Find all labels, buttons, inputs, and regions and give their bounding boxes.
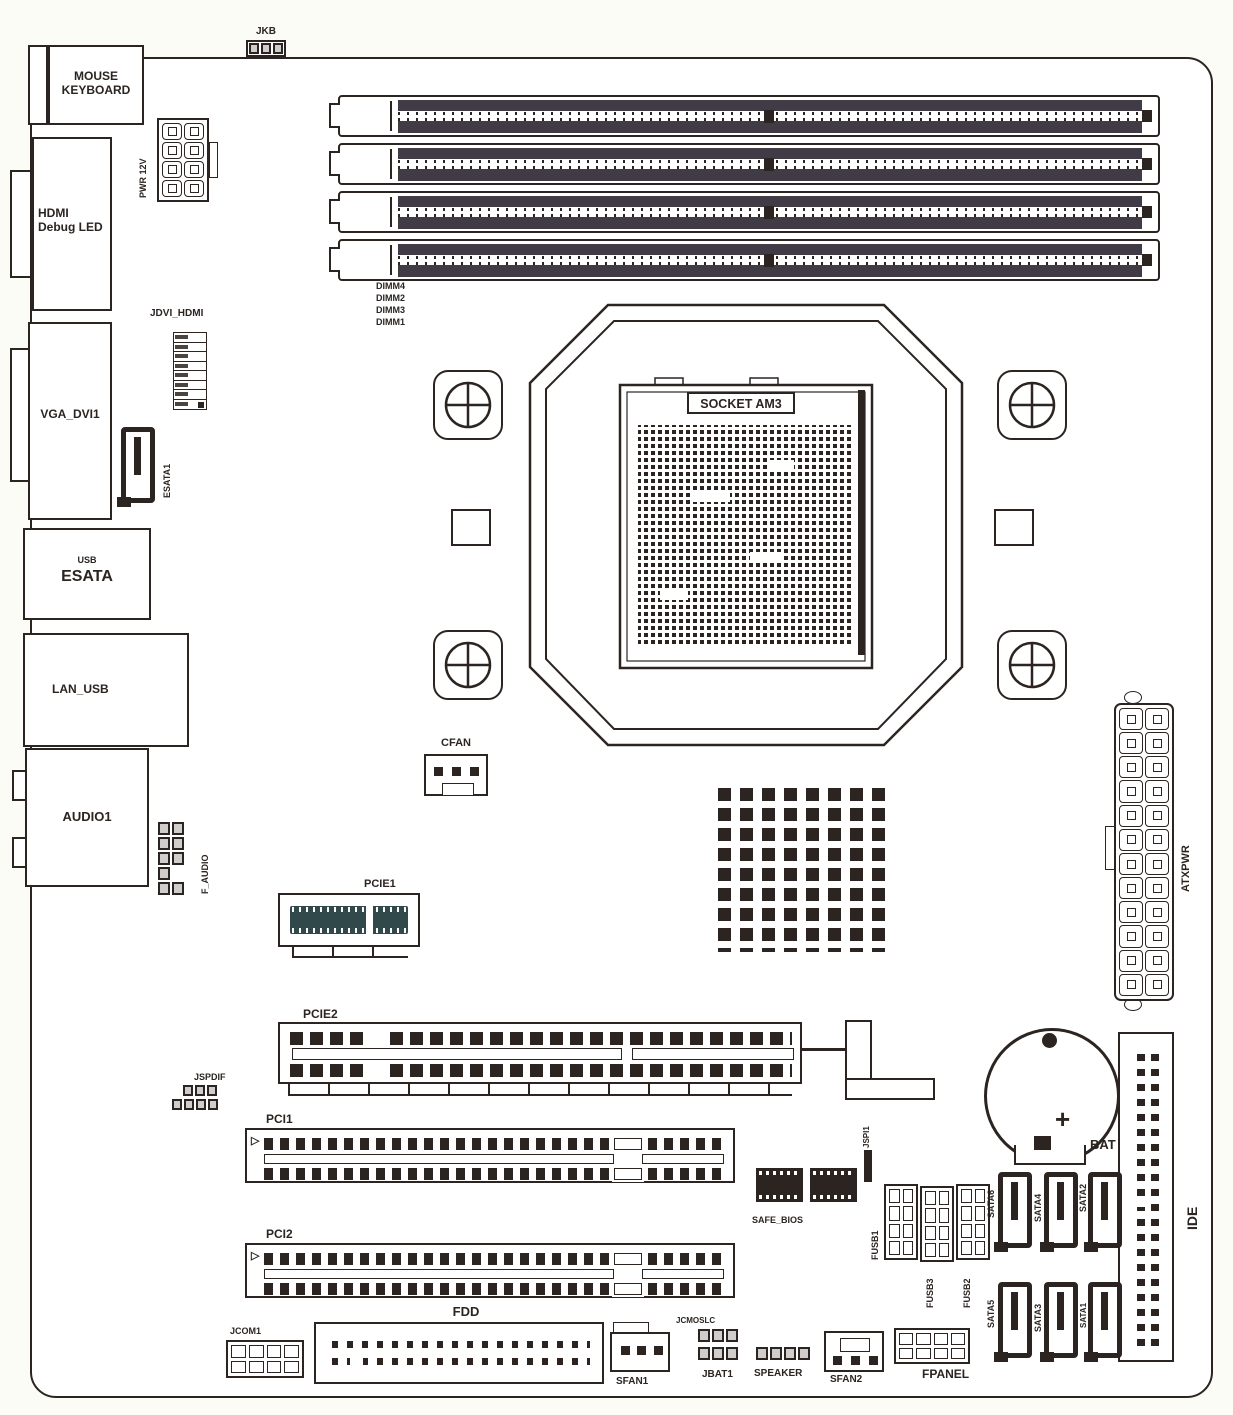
fpanel-label: FPANEL bbox=[922, 1368, 969, 1382]
pcie1-solder-teeth bbox=[292, 947, 408, 958]
sata2-connector bbox=[1088, 1172, 1122, 1248]
hdmi-port-bracket bbox=[10, 170, 32, 278]
atxpwr-connector bbox=[1114, 703, 1174, 1001]
jdvi-hdmi-label: JDVI_HDMI bbox=[150, 308, 203, 320]
pci1-label: PCI1 bbox=[266, 1113, 293, 1127]
pcie2-solder-teeth bbox=[288, 1084, 792, 1096]
sata1-label: SATA1 bbox=[1079, 1288, 1088, 1328]
sata6-connector bbox=[998, 1172, 1032, 1248]
dimm-label-4: DIMM1 bbox=[376, 317, 405, 327]
fusb1-header bbox=[884, 1184, 918, 1260]
fdd-connector bbox=[314, 1322, 604, 1384]
ide-connector bbox=[1118, 1032, 1174, 1362]
hdmi-debugled-label: HDMIDebug LED bbox=[38, 207, 103, 235]
cfan-label: CFAN bbox=[430, 737, 482, 750]
sata3-connector bbox=[1044, 1282, 1078, 1358]
pcie2-label: PCIE2 bbox=[303, 1008, 338, 1022]
esata1-label: ESATA1 bbox=[162, 442, 172, 498]
esata-label: ESATA bbox=[25, 568, 149, 586]
atxpwr-label: ATXPWR bbox=[1180, 824, 1193, 892]
jspdif-label: JSPDIF bbox=[194, 1072, 226, 1082]
jbat1-label: JBAT1 bbox=[702, 1369, 733, 1381]
motherboard-diagram: MOUSEKEYBOARD HDMIDebug LED VGA_DVI1 USB… bbox=[0, 0, 1233, 1415]
audio-label: AUDIO1 bbox=[27, 810, 147, 825]
dimm-label-3: DIMM3 bbox=[376, 305, 405, 315]
pci1-slot: ▷ bbox=[245, 1128, 735, 1183]
bios-chip-2 bbox=[810, 1168, 857, 1202]
f-audio-header bbox=[158, 822, 184, 895]
fusb3-header bbox=[920, 1186, 954, 1262]
esata1-connector bbox=[121, 427, 155, 503]
dimm-label-2: DIMM2 bbox=[376, 293, 405, 303]
sata3-label: SATA3 bbox=[1033, 1290, 1043, 1332]
sfan2-label: SFAN2 bbox=[830, 1374, 862, 1386]
jcmos-jumper bbox=[698, 1329, 738, 1342]
pcie1-label: PCIE1 bbox=[364, 878, 396, 891]
jspdif-header-row1 bbox=[183, 1085, 217, 1096]
sfan1-connector bbox=[610, 1332, 670, 1372]
sfan2-connector bbox=[824, 1331, 884, 1372]
jkb-jumper bbox=[246, 40, 286, 57]
chipset-heatsink bbox=[718, 788, 892, 952]
bios-chip-1 bbox=[756, 1168, 803, 1202]
vga-dvi-label: VGA_DVI1 bbox=[30, 408, 110, 422]
fusb1-label: FUSB1 bbox=[870, 1216, 880, 1260]
fusb3-label: FUSB3 bbox=[925, 1264, 935, 1308]
pci2-label: PCI2 bbox=[266, 1228, 293, 1242]
cfan-connector bbox=[424, 754, 488, 796]
f-audio-label: F_AUDIO bbox=[200, 832, 210, 894]
sata4-label: SATA4 bbox=[1033, 1180, 1043, 1222]
jcmos-label: JCMOSLC bbox=[676, 1316, 715, 1325]
pcie2-slot bbox=[278, 1022, 802, 1084]
jcom1-header bbox=[226, 1340, 304, 1378]
jkb-label: JKB bbox=[240, 26, 292, 38]
jdvi-hdmi-header bbox=[173, 332, 207, 410]
dimm-slot-1 bbox=[338, 95, 1160, 137]
fusb2-header bbox=[956, 1184, 990, 1260]
battery-plus: + bbox=[1055, 1105, 1070, 1135]
lan-usb-label: LAN_USB bbox=[52, 683, 109, 697]
pcie2-latch-foot bbox=[845, 1078, 935, 1100]
speaker-label: SPEAKER bbox=[754, 1368, 802, 1380]
jcom1-label: JCOM1 bbox=[230, 1326, 261, 1336]
cpu-retention-assembly: SOCKET AM3 bbox=[420, 290, 1080, 760]
ide-label: IDE bbox=[1184, 1188, 1200, 1230]
dimm-slot-2 bbox=[338, 143, 1160, 185]
dimm-label-1: DIMM4 bbox=[376, 281, 405, 291]
pci2-orientation-marker: ▷ bbox=[251, 1250, 259, 1263]
pcie1-slot bbox=[278, 893, 420, 947]
sfan1-label: SFAN1 bbox=[616, 1376, 648, 1388]
sata4-connector bbox=[1044, 1172, 1078, 1248]
dimm-slot-3 bbox=[338, 191, 1160, 233]
jspi-connector bbox=[864, 1150, 872, 1182]
usb-label: USB bbox=[25, 555, 149, 565]
jbat1-jumper bbox=[698, 1347, 738, 1360]
pci1-orientation-marker: ▷ bbox=[251, 1135, 259, 1148]
sata2-label: SATA2 bbox=[1078, 1170, 1088, 1212]
mouse-keyboard-port-bracket bbox=[28, 45, 48, 125]
jspi-label: JSPI1 bbox=[862, 1118, 871, 1148]
fusb2-label: FUSB2 bbox=[962, 1264, 972, 1308]
fdd-label: FDD bbox=[440, 1305, 492, 1320]
pwr12v-connector bbox=[157, 118, 209, 202]
dimm-slot-4 bbox=[338, 239, 1160, 281]
battery-label: BAT bbox=[1090, 1138, 1116, 1153]
sata5-label: SATA5 bbox=[986, 1286, 996, 1328]
pwr12v-label: PWR 12V bbox=[138, 134, 148, 198]
battery-top-dot bbox=[1042, 1033, 1057, 1048]
mouse-keyboard-label: MOUSEKEYBOARD bbox=[50, 70, 142, 98]
jspdif-header-row2 bbox=[172, 1099, 218, 1110]
pcie2-latch-arm bbox=[802, 1048, 846, 1051]
socket-label: SOCKET AM3 bbox=[700, 397, 782, 411]
sata6-label: SATA6 bbox=[986, 1176, 996, 1218]
speaker-header bbox=[756, 1347, 810, 1360]
pwr12v-latch bbox=[209, 142, 218, 178]
pci2-slot: ▷ bbox=[245, 1243, 735, 1298]
battery-terminal bbox=[1034, 1136, 1051, 1150]
sata5-connector bbox=[998, 1282, 1032, 1358]
sata1-connector bbox=[1088, 1282, 1122, 1358]
fpanel-header bbox=[894, 1328, 970, 1364]
safe-bios-label: SAFE_BIOS bbox=[752, 1215, 803, 1225]
